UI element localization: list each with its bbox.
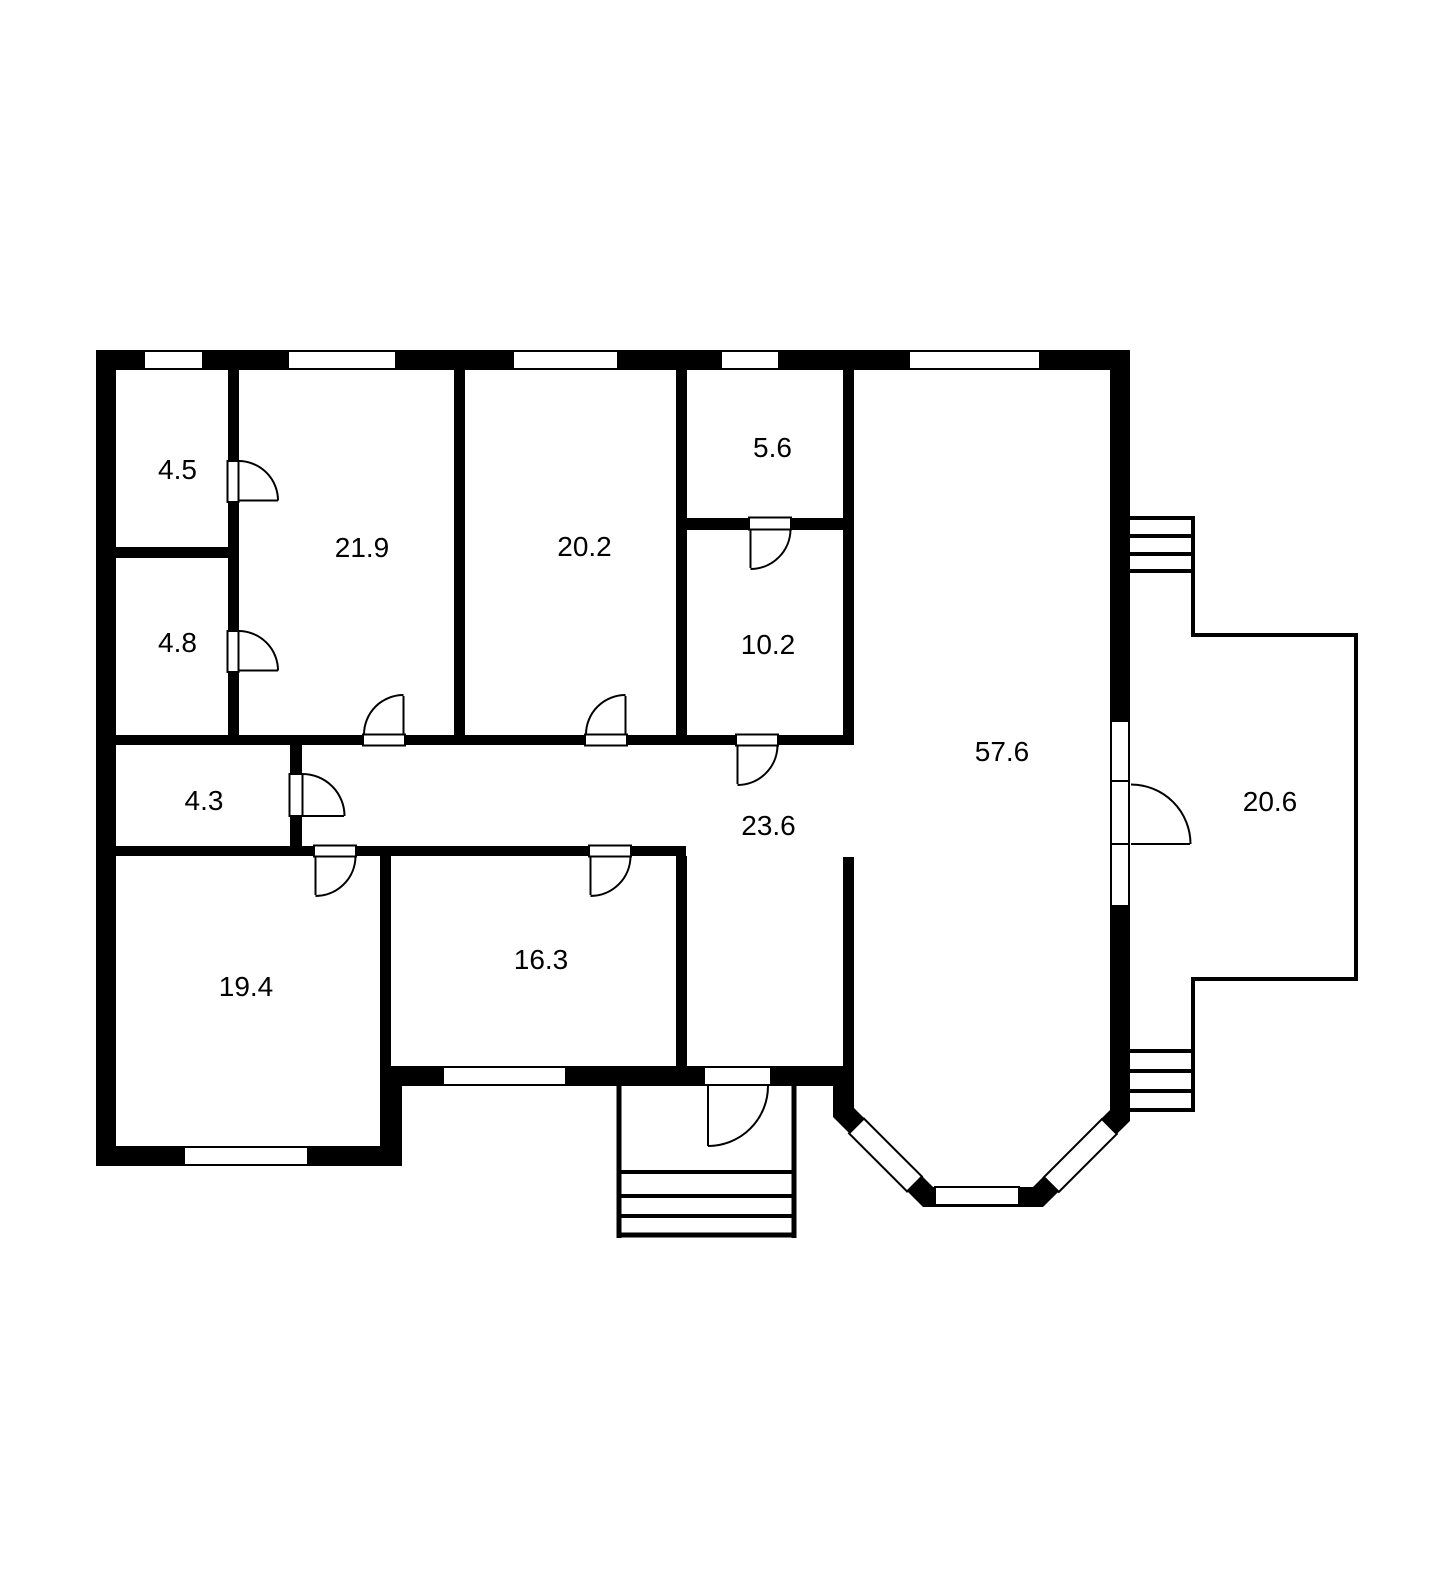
svg-text:10.2: 10.2 (741, 629, 796, 660)
svg-text:57.6: 57.6 (975, 736, 1030, 767)
svg-text:23.6: 23.6 (741, 810, 796, 841)
svg-text:4.3: 4.3 (185, 785, 224, 816)
svg-text:16.3: 16.3 (514, 944, 569, 975)
svg-text:4.8: 4.8 (158, 627, 197, 658)
svg-text:5.6: 5.6 (753, 432, 792, 463)
svg-text:19.4: 19.4 (219, 971, 274, 1002)
svg-text:21.9: 21.9 (335, 532, 390, 563)
svg-text:20.2: 20.2 (557, 531, 612, 562)
svg-text:4.5: 4.5 (158, 454, 197, 485)
svg-text:20.6: 20.6 (1243, 786, 1298, 817)
